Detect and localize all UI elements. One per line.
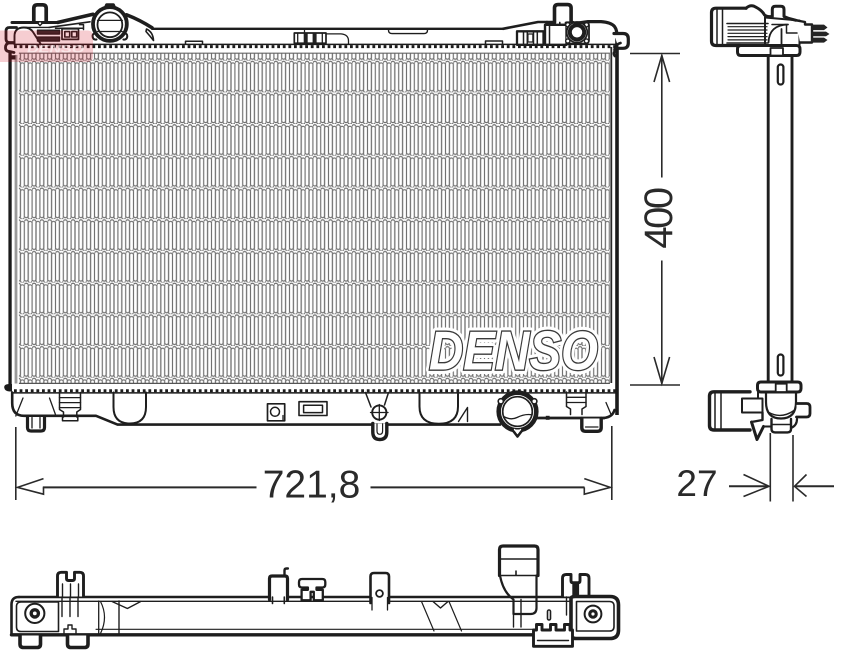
- svg-text:DENSO: DENSO: [27, 43, 85, 55]
- svg-text:400: 400: [637, 188, 681, 248]
- svg-text:27: 27: [676, 463, 717, 504]
- svg-text:721,8: 721,8: [263, 464, 361, 507]
- svg-text:DENSO: DENSO: [429, 320, 598, 381]
